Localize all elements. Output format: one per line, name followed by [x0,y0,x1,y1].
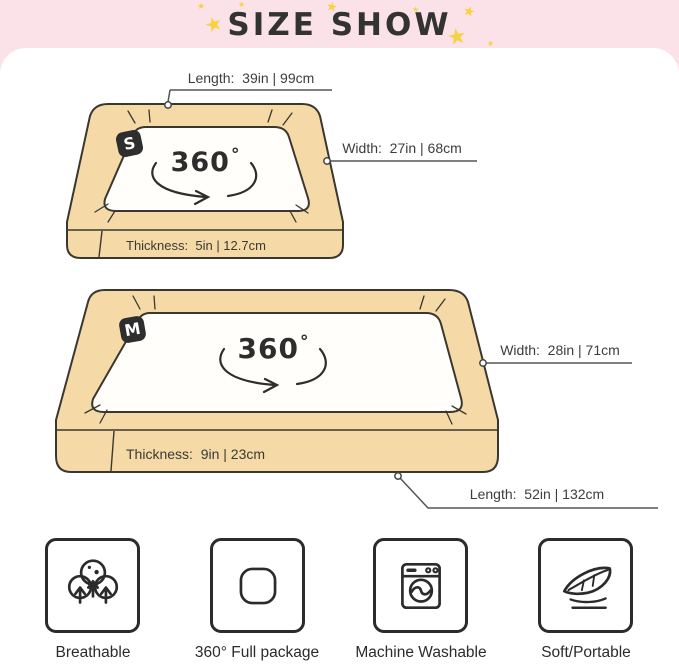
feature-label: Breathable [0,644,188,662]
medium-width-label: Width: 28in | 71cm [486,342,634,358]
degree-symbol: ° [300,332,310,352]
rotation-value: 360 [171,147,230,178]
machine-washable-icon [390,555,452,617]
full-package-icon [227,555,289,617]
size-badge-m: M [118,315,147,344]
size-show-infographic: SIZE SHOW ★ ★ ★ ★ ★ ★ ★ ★ [0,0,679,664]
rotation-value: 360 [238,332,299,365]
feature-box-soft-portable [538,538,633,633]
degree-symbol: ° [231,145,241,165]
medium-length-label: Length: 52in | 132cm [432,486,642,502]
small-length-label: Length: 39in | 99cm [170,70,332,86]
soft-portable-icon [555,555,617,617]
small-width-label: Width: 27in | 68cm [327,140,477,156]
feature-box-machine-washable [373,538,468,633]
feature-box-full-package [210,538,305,633]
feature-box-breathable [45,538,140,633]
medium-thickness-label: Thickness: 9in | 23cm [126,446,265,462]
feature-label: 360° Full package [162,644,352,662]
small-thickness-label: Thickness: 5in | 12.7cm [126,238,266,253]
feature-label: Machine Washable [326,644,516,662]
medium-width-leader [480,360,632,366]
rotation-360-small: 360° [160,147,250,178]
small-bed [67,104,343,258]
feature-label: Soft/Portable [491,644,679,662]
breathable-icon [62,555,124,617]
small-width-leader [324,158,477,164]
rotation-360-medium: 360° [228,332,318,365]
medium-bed [56,290,498,472]
